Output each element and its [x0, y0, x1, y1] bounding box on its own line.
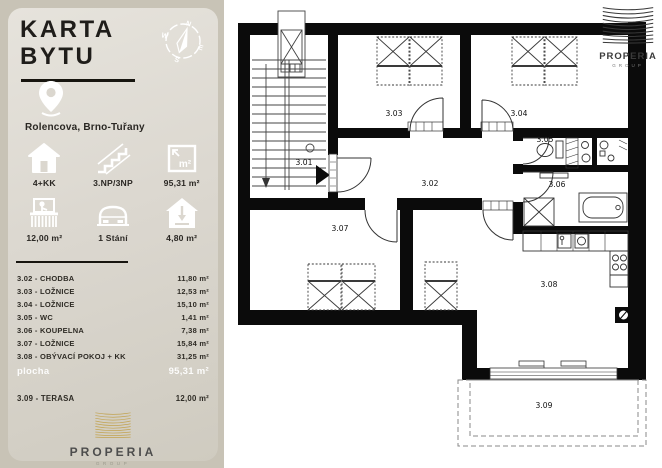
entrance-door — [329, 154, 371, 192]
svg-text:N: N — [185, 20, 192, 28]
stat-layout: 4+KK — [10, 141, 79, 188]
room-row: 3.06 - KOUPELNA 7,38 m² — [17, 324, 209, 337]
wardrobes — [308, 37, 577, 310]
room-row: 3.07 - LOŽNICE 15,84 m² — [17, 337, 209, 350]
location-text: Rolencova, Brno-Tuřany — [25, 122, 210, 133]
room-name: 3.03 - LOŽNICE — [17, 287, 75, 296]
title-line-1: KARTA — [20, 16, 115, 43]
apartment-info-card: KARTA BYTU NESW Rolencova, Brno-Tuřany — [8, 8, 218, 461]
room-label-303: 3.03 — [386, 109, 403, 118]
page-title: KARTA BYTU — [20, 16, 115, 70]
terrace-row: 3.09 - TERASA 12,00 m² — [17, 394, 209, 403]
room-name: 3.06 - KOUPELNA — [17, 326, 84, 335]
stair-direction-arrow — [262, 178, 270, 188]
compass-icon: NESW — [160, 18, 206, 64]
stat-floor-value: 3.NP/3NP — [93, 178, 133, 188]
room-name: 3.08 - OBÝVACÍ POKOJ + KK — [17, 352, 126, 361]
stat-terrace-value: 12,00 m² — [26, 233, 62, 243]
room-label-302: 3.02 — [422, 179, 439, 188]
terrace-area: 12,00 m² — [176, 394, 209, 403]
stove-box — [615, 307, 632, 323]
svg-text:E: E — [197, 44, 204, 52]
stat-area: m² 95,31 m² — [147, 141, 216, 188]
title-line-2: BYTU — [20, 43, 115, 70]
room-area: 7,38 m² — [181, 326, 209, 335]
room-area: 31,25 m² — [177, 352, 209, 361]
room-row: 3.05 - WC 1,41 m² — [17, 311, 209, 324]
watermark-brand-name: PROPERIA — [594, 51, 662, 62]
properia-logo: PROPERIA GROUP — [8, 411, 218, 466]
room-label-309: 3.09 — [536, 401, 553, 410]
room-area: 11,80 m² — [177, 274, 209, 283]
apartment-card-page: 3.01 3.02 3.03 3.04 3.05 3.06 3.07 3.08 … — [0, 0, 662, 468]
total-area-value: 95,31 m² — [169, 366, 209, 377]
kitchen — [523, 231, 628, 287]
room-label-308: 3.08 — [541, 280, 558, 289]
room-area: 15,10 m² — [177, 300, 209, 309]
stat-layout-value: 4+KK — [33, 178, 56, 188]
stat-parking-value: 1 Stání — [98, 233, 128, 243]
properia-waves-icon — [600, 5, 656, 45]
room-area: 12,53 m² — [177, 287, 209, 296]
room-name: 3.07 - LOŽNICE — [17, 339, 75, 348]
room-row: 3.02 - CHODBA 11,80 m² — [17, 272, 209, 285]
room-label-307: 3.07 — [332, 224, 349, 233]
room-label-301: 3.01 — [296, 158, 313, 167]
watermark-brand-group: GROUP — [594, 63, 662, 68]
room-list: 3.02 - CHODBA 11,80 m² 3.03 - LOŽNICE 12… — [17, 272, 209, 363]
room-row: 3.04 - LOŽNICE 15,10 m² — [17, 298, 209, 311]
room-name: 3.02 - CHODBA — [17, 274, 74, 283]
stat-terrace: 12,00 m² — [10, 196, 79, 243]
stat-area-value: 95,31 m² — [164, 178, 200, 188]
room-row: 3.08 - OBÝVACÍ POKOJ + KK 31,25 m² — [17, 350, 209, 363]
room-label-304: 3.04 — [511, 109, 528, 118]
total-area-row: plocha 95,31 m² — [17, 366, 209, 377]
total-area-label: plocha — [17, 366, 49, 377]
balcony-icon — [26, 196, 62, 230]
section-divider — [16, 261, 128, 263]
room-area: 15,84 m² — [177, 339, 209, 348]
terrace-label: 3.09 - TERASA — [17, 394, 74, 403]
terrace-outline — [458, 380, 646, 446]
brand-group: GROUP — [8, 461, 218, 466]
room-label-305: 3.05 — [537, 135, 554, 144]
bathroom-fixtures — [524, 138, 627, 226]
stat-cellar: 4,80 m² — [147, 196, 216, 243]
stat-cellar-value: 4,80 m² — [166, 233, 197, 243]
car-icon — [94, 196, 132, 230]
brand-name: PROPERIA — [8, 445, 218, 459]
cellar-icon — [164, 196, 200, 230]
room-label-306: 3.06 — [549, 180, 566, 189]
stairs-icon — [94, 141, 132, 175]
room-name: 3.05 - WC — [17, 313, 53, 322]
room-row: 3.03 - LOŽNICE 12,53 m² — [17, 285, 209, 298]
svg-text:S: S — [173, 56, 180, 64]
svg-text:m²: m² — [179, 159, 192, 170]
properia-waves-icon — [93, 411, 133, 439]
stats-grid: 4+KK 3.NP/3NP m² 95,31 m² — [10, 141, 216, 243]
svg-text:W: W — [160, 32, 169, 41]
properia-watermark: PROPERIA GROUP — [594, 5, 662, 68]
stat-floor: 3.NP/3NP — [79, 141, 148, 188]
location-pin-icon — [38, 80, 64, 118]
room-name: 3.04 - LOŽNICE — [17, 300, 75, 309]
room-area: 1,41 m² — [181, 313, 209, 322]
house-icon — [26, 141, 62, 175]
area-icon: m² — [164, 141, 200, 175]
staircase — [252, 11, 326, 190]
stat-parking: 1 Stání — [79, 196, 148, 243]
sliding-door — [490, 361, 617, 379]
